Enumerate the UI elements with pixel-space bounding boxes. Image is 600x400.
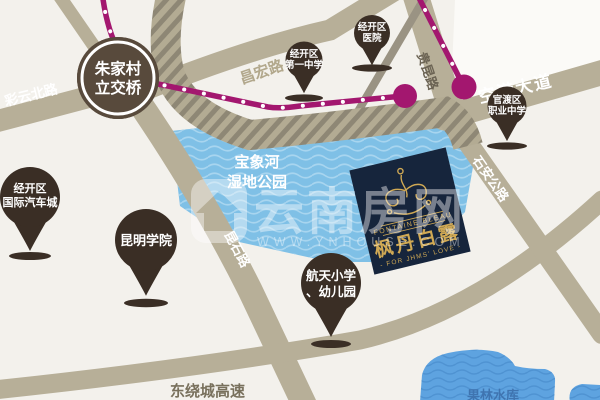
- pin-shadow: [285, 94, 323, 101]
- pin-label-line1: 官渡区: [493, 94, 522, 106]
- pin-shadow: [352, 64, 392, 71]
- pin-icon: [301, 253, 361, 313]
- watermark: 云南房网 WWW.YNHOUSE.COM: [191, 179, 466, 249]
- pin-label-line1: 航天小学: [306, 268, 357, 283]
- map-canvas: FONTAINE BLEAU 枫丹白露 - FOR JHMS' LOVE - 朱…: [0, 0, 600, 400]
- metro-terminus-station-icon: [452, 75, 477, 100]
- pin-label-line2: 国际汽车城: [3, 195, 58, 209]
- interchange-label-line2: 立交桥: [95, 78, 142, 97]
- wetland-label-line1: 宝象河: [234, 153, 279, 171]
- pin-label-line1: 经开区: [290, 48, 319, 60]
- pin-label-line2: 、幼儿园: [306, 284, 356, 299]
- location-map: FONTAINE BLEAU 枫丹白露 - FOR JHMS' LOVE - 朱…: [0, 0, 600, 400]
- pin-shadow: [311, 340, 351, 348]
- pin-label-line2: 职业中学: [488, 105, 527, 117]
- reservoir-label: 果林水库: [466, 388, 519, 400]
- interchange-badge: 朱家村 立交桥: [77, 37, 159, 119]
- pin-shadow: [487, 142, 527, 149]
- pin-label-line1: 昆明学院: [120, 233, 172, 248]
- watermark-house-icon: [191, 179, 247, 243]
- road-label-expressway: 东绕城高速: [170, 382, 245, 400]
- interchange-label-line1: 朱家村: [95, 59, 142, 78]
- pin-label-line2: 医院: [362, 32, 382, 44]
- watermark-brand: 云南房网: [254, 184, 466, 240]
- watermark-url: WWW.YNHOUSE.COM: [257, 235, 465, 249]
- pin-shadow: [9, 252, 51, 260]
- pin-label-line1: 经开区: [358, 21, 387, 33]
- pin-shadow: [124, 299, 168, 307]
- metro-terminus-station-icon: [393, 84, 417, 108]
- pin-label-line1: 经开区: [14, 181, 47, 195]
- pin-label-line2: 第一中学: [285, 59, 324, 71]
